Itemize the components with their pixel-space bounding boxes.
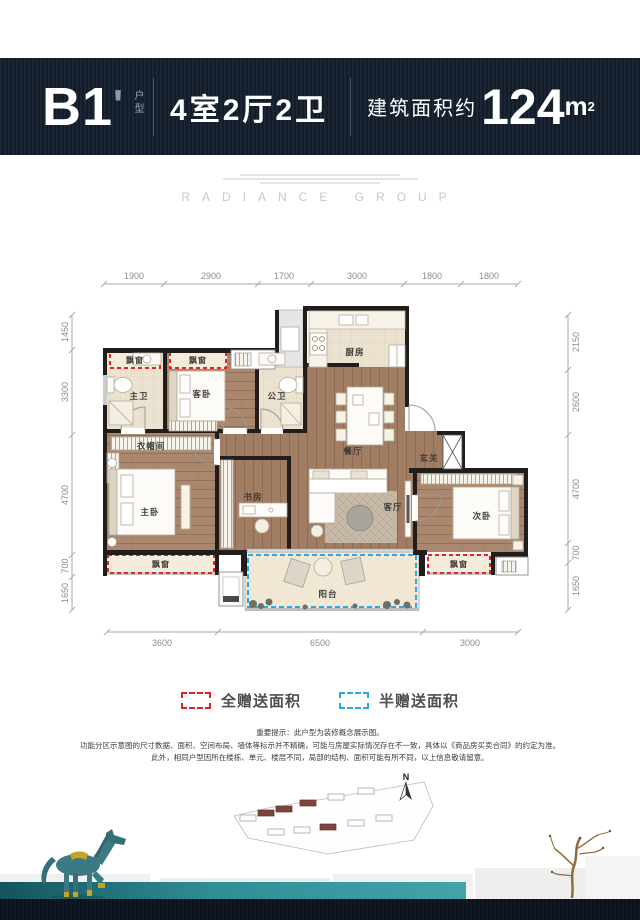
legend-half-gift: 半赠送面积 [339,690,459,711]
dim-top-5: 1800 [422,271,442,281]
unit-header: B1' 户型 4室2厅2卫 建筑面积约 124 m 2 [0,58,640,155]
room-label-study: 书房 [243,492,262,502]
room-label-cloakroom: 衣帽间 [137,441,166,451]
floor-plan: 1900 2900 1700 3000 1800 1800 1450 3300 … [55,255,585,655]
dim-top-4: 3000 [347,271,367,281]
footer-band [0,899,640,920]
room-label-dining: 餐厅 [342,446,362,456]
area-label: 建筑面积约 [367,92,477,121]
dim-right-4: 700 [571,545,581,560]
area-unit: m [565,91,588,122]
unit-layout: 4室2厅2卫 [170,85,328,129]
dim-top-2: 2900 [201,271,221,281]
dim-right-5: 1650 [571,576,581,596]
dim-bottom-3: 3000 [460,638,480,648]
bay-window-label: 飘窗 [450,559,468,569]
watermark-microtext-line [223,178,418,180]
entry-door-arc [409,405,435,431]
disclaimer-line-3: 此外，相同户型因所在楼栋、单元、楼层不同，局部的结构、面积可能有所不同，以上信息… [0,752,640,765]
legend-full-gift: 全赠送面积 [181,690,301,711]
highlighted-building [300,800,316,806]
unit-code: B1' [42,80,124,134]
dim-top-1: 1900 [124,271,144,281]
site-plan: N [228,766,440,866]
horse-statue-decoration [30,827,130,899]
dim-bottom-2: 6500 [310,638,330,648]
room-label-guest-bedroom: 客卧 [191,389,211,399]
bay-window-label: 飘窗 [189,355,207,365]
dim-right-2: 2600 [571,392,581,412]
half-gift-label: 半赠送面积 [379,690,459,711]
dim-left-3: 4700 [60,485,70,505]
room-label-living: 客厅 [382,502,402,512]
half-gift-swatch [339,692,369,709]
dimension-chain-bottom [104,629,521,635]
header-divider [153,78,154,136]
room-label-foyer: 玄关 [419,453,438,463]
unit-code-text: B1 [42,77,113,137]
brand-watermark: RADIANCE GROUP [0,190,640,204]
dim-left-2: 3300 [60,382,70,402]
dimension-chain-right [565,312,571,613]
dim-bottom-1: 3600 [152,638,172,648]
watermark-microtext-line [240,174,400,176]
dim-left-1: 1450 [60,322,70,342]
svg-text:N: N [403,772,410,782]
floorplan-card: B1' 户型 4室2厅2卫 建筑面积约 124 m 2 RADIANCE GRO… [0,0,640,920]
dim-right-3: 4700 [571,479,581,499]
disclaimer-line-1: 重要提示：此户型为装修概念展示图。 [0,727,640,740]
full-gift-swatch [181,692,211,709]
header-divider-2 [350,78,351,136]
disclaimer-line-2: 功能分区示意图的尺寸数据、面积、空间布局、墙体等标示并不精确，可能与房屋实际情况… [0,740,640,753]
gift-area-legend: 全赠送面积 半赠送面积 [0,690,640,711]
unit-code-suffix: 户型 [130,90,145,124]
dim-left-4: 700 [60,558,70,573]
disclaimer: 重要提示：此户型为装修概念展示图。 功能分区示意图的尺寸数据、面积、空间布局、墙… [0,727,640,765]
branch-decoration [528,828,623,898]
room-label-master-bath: 主卫 [129,391,148,401]
bay-window-label: 飘窗 [152,559,170,569]
room-label-kitchen: 厨房 [345,347,364,357]
full-gift-label: 全赠送面积 [221,690,301,711]
room-label-master-bedroom: 主卧 [140,507,159,517]
area-unit-sup: 2 [588,99,595,114]
dimension-chain-top [101,281,521,287]
dim-right-1: 2150 [571,332,581,352]
room-label-public-bath: 公卫 [267,391,286,401]
bay-window-label: 飘窗 [126,355,144,365]
area-value: 124 [481,82,564,132]
room-label-second-bedroom: 次卧 [472,511,491,521]
watermark-microtext-line [260,182,380,184]
dim-left-5: 1650 [60,583,70,603]
dim-top-3: 1700 [274,271,294,281]
unit-code-mark: ' [113,81,124,128]
highlighted-building [258,810,274,816]
room-label-balcony: 阳台 [318,589,337,599]
watermark: RADIANCE GROUP [0,172,640,204]
highlighted-building [276,806,292,812]
dim-top-6: 1800 [479,271,499,281]
highlighted-building [320,824,336,830]
